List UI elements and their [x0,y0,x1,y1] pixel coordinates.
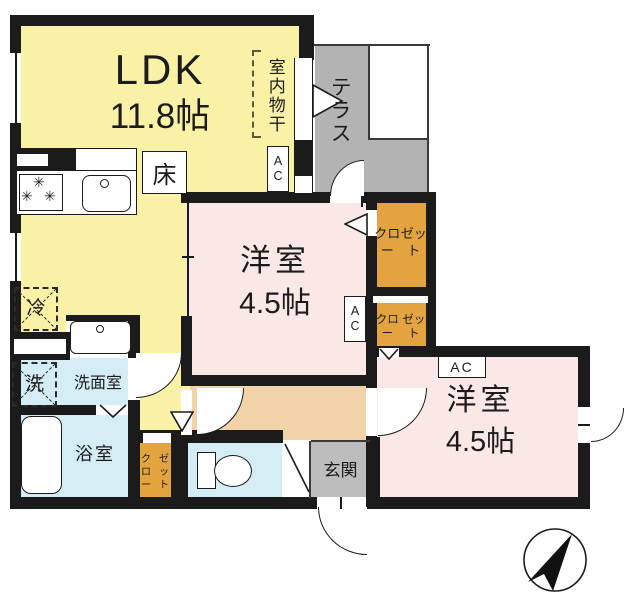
window-pane [15,233,17,281]
bathtub [21,416,62,494]
bedroom1-area: 4.5帖 [190,286,360,322]
closet3-line1: クロー [137,453,155,492]
door-arc-bedroom2-window [591,408,624,442]
folding-door-closet2 [378,348,400,361]
wall-toilet-left [171,437,188,498]
opening-triangle-closet1 [344,213,368,236]
indoor-drying-label: 室内物干 [262,50,288,142]
toilet-door-line [284,443,310,493]
wall-top [10,15,314,26]
closet3-line2: ゼット [155,453,173,492]
closet2-line2: ゼット [401,313,428,342]
slot-kitchen-wall [17,154,48,166]
washbasin-faucet [96,325,104,333]
door-arc-entrance [318,507,367,555]
closet1-line2: ゼット [401,226,428,260]
burner-icon: ✳ [33,174,45,191]
closet3-label: クローゼット [137,452,173,492]
hinge-tick-entrance [340,497,342,509]
floor-plan: ✳ ✳ ✳ 冷 洗 LDK 11.8帖 室内物干 テラス AC 床 洋室 4.5… [0,0,640,607]
sink-faucet [100,179,109,188]
entrance-top-line [311,440,370,442]
terrace-outline-mid-v [368,46,370,140]
closet2-line1: クロー [374,313,401,342]
hinge-tick-terrace [361,196,363,207]
wall-bedroom1-top [181,192,436,203]
terrace-outline-right [427,44,429,197]
wall-hall-top [181,375,377,386]
burner-icon: ✳ [21,188,33,205]
closet2-label: クローゼット [374,308,427,346]
bedroom2-label: 洋室 [398,384,563,418]
washer-label: 洗 [12,362,57,407]
wall-ldk-terrace-upper [299,15,314,60]
slot-washroom-wall [14,339,66,354]
ldk-label: LDK [60,46,260,94]
toilet-bowl [214,455,252,487]
window-pane [15,53,17,123]
doorway-bedroom2 [366,388,377,436]
ac-label-bedroom2: AC [438,356,486,378]
burner-icon: ✳ [44,188,56,205]
wall-between-closets [373,287,428,296]
window-tick [578,424,590,426]
ac-label-bedroom1: AC [344,296,366,342]
sliding-partition-line [187,203,189,318]
bedroom2-area: 4.5帖 [398,426,563,460]
fridge-label: 冷 [14,287,58,331]
folding-door-bathroom [98,404,128,419]
terrace-label: テラス [324,66,354,154]
opening-triangle-closet3 [170,411,194,432]
wall-ldk-bedroom1-lower [181,316,192,382]
ldk-area: 11.8帖 [45,96,275,138]
ac-label-ldk: AC [267,146,289,192]
entrance-label: 玄関 [311,460,370,482]
wall-bottom [10,497,590,509]
terrace-outline-mid-h [368,138,428,140]
wall-ldk-terrace-lower [294,140,313,178]
window-ldk-terrace [294,58,313,140]
wall-closet-right [426,192,436,357]
north-compass-icon [518,526,592,596]
bedroom1-label: 洋室 [190,243,360,279]
closet1-line1: クロー [374,226,401,260]
drying-bracket [252,50,261,138]
terrace-outline-top [313,44,430,46]
doorway-closet3 [143,433,171,443]
kitchen-cabinet [75,148,137,172]
closet1-label: クローゼット [374,222,427,264]
washroom-label: 洗面室 [56,374,140,394]
floor-label-box: 床 [142,151,187,194]
bathroom-label: 浴室 [58,443,132,465]
window-ldk-terrace-low [294,176,313,193]
slot-between-closets [373,296,428,303]
